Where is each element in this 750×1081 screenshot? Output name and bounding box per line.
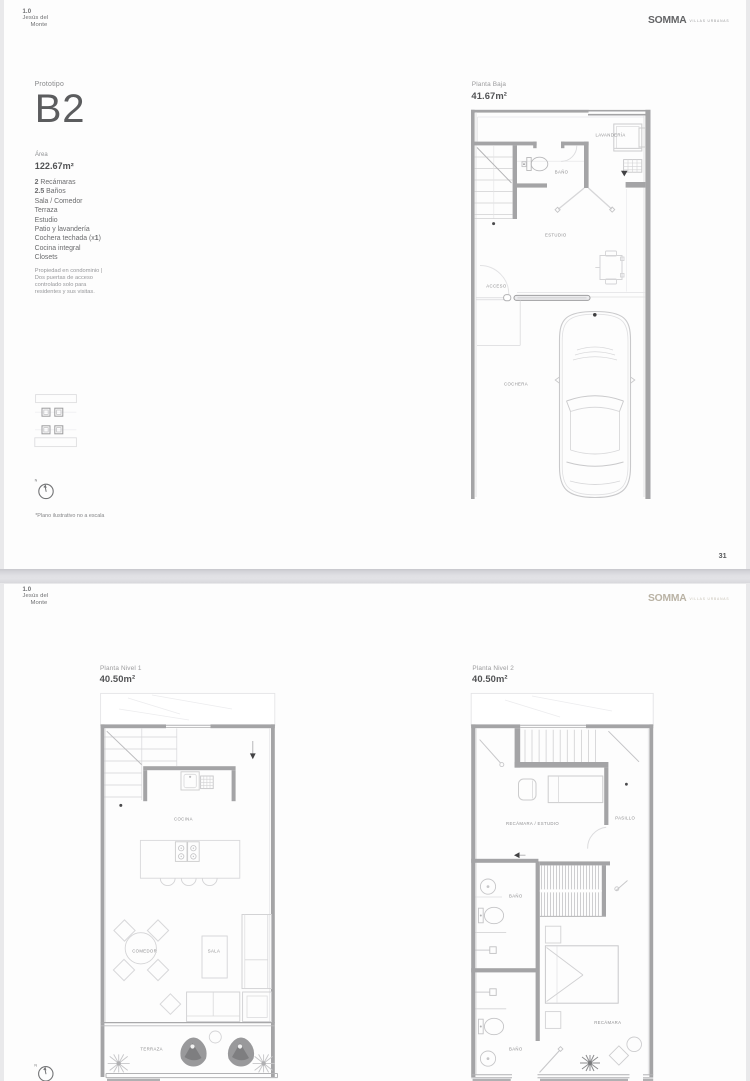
svg-text:COCHERA: COCHERA <box>504 381 528 386</box>
svg-text:ESTUDIO: ESTUDIO <box>545 233 567 238</box>
svg-text:BAÑO: BAÑO <box>555 169 569 174</box>
svg-text:N: N <box>35 479 38 483</box>
svg-text:BAÑO: BAÑO <box>509 1047 523 1052</box>
svg-text:BAÑO: BAÑO <box>509 894 523 899</box>
svg-text:SALA: SALA <box>208 949 220 954</box>
svg-text:RECÁMARA: RECÁMARA <box>594 1020 621 1025</box>
svg-text:N: N <box>34 1063 37 1067</box>
svg-text:RECÁMARA / ESTUDIO: RECÁMARA / ESTUDIO <box>506 821 559 826</box>
svg-text:COMEDOR: COMEDOR <box>132 949 157 954</box>
svg-text:PASILLO: PASILLO <box>615 815 635 820</box>
svg-text:COCINA: COCINA <box>174 817 193 822</box>
svg-text:ACCESO: ACCESO <box>486 284 507 289</box>
svg-text:LAVANDERÍA: LAVANDERÍA <box>596 133 626 138</box>
svg-text:TERRAZA: TERRAZA <box>140 1047 163 1052</box>
